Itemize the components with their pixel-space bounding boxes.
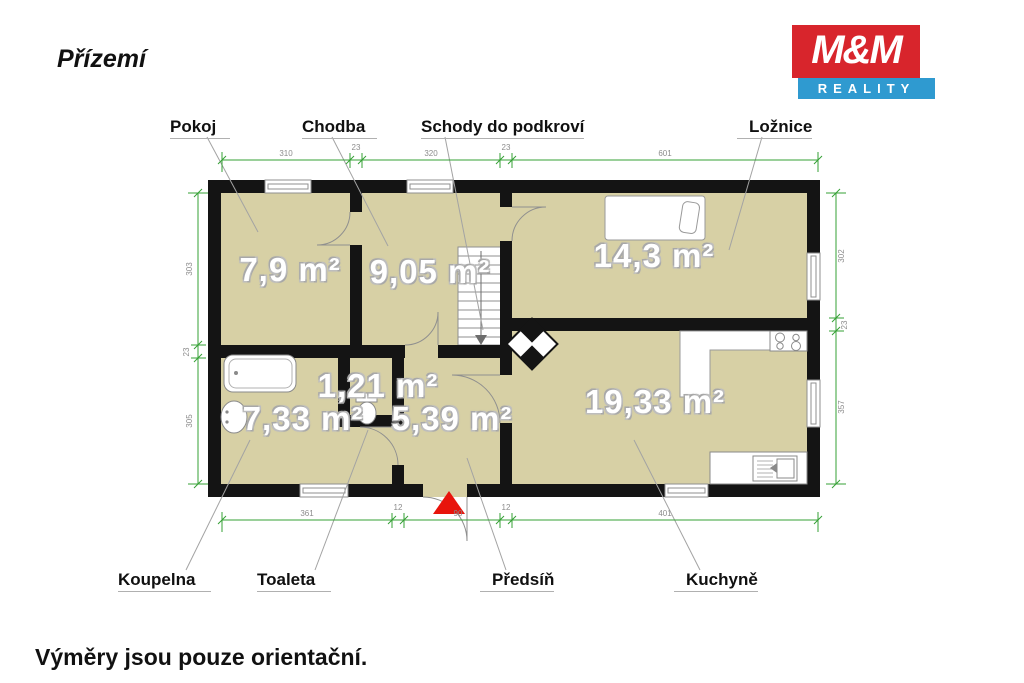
kitchen-sink-icon bbox=[710, 452, 807, 484]
window-kuchyne-bottom bbox=[665, 484, 708, 497]
bed-icon bbox=[605, 196, 705, 240]
logo-reality-text: REALITY bbox=[798, 78, 935, 99]
room-label-kuchyne: Kuchyně bbox=[674, 570, 758, 592]
window-koupelna bbox=[300, 484, 348, 497]
room-label-schody: Schody do podkroví bbox=[421, 117, 584, 139]
dim-ticks-top bbox=[218, 152, 822, 172]
area-koupelna: 7,33 m² bbox=[243, 400, 364, 438]
dim-right-2: 23 bbox=[840, 320, 849, 329]
area-chodba: 9,05 m² bbox=[370, 253, 491, 291]
dim-top-3: 320 bbox=[424, 149, 438, 158]
dim-left-2: 23 bbox=[182, 347, 191, 356]
dim-right-3: 357 bbox=[837, 400, 846, 414]
dim-top-2: 23 bbox=[352, 143, 361, 152]
room-label-chodba: Chodba bbox=[302, 117, 377, 139]
logo-mm-text: M&M bbox=[792, 25, 920, 78]
dim-bottom-1: 361 bbox=[300, 509, 314, 518]
bathtub-icon bbox=[224, 355, 296, 392]
dim-right-1: 302 bbox=[837, 249, 846, 263]
area-kuchyne: 19,33 m² bbox=[585, 383, 725, 421]
dim-bottom-4: 12 bbox=[502, 503, 511, 512]
dim-left-3: 305 bbox=[185, 414, 194, 428]
dim-left-1: 303 bbox=[185, 262, 194, 276]
room-label-loznice: Ložnice bbox=[737, 117, 812, 139]
area-loznice: 14,3 m² bbox=[594, 237, 715, 275]
wall-chodba-loznice-lower bbox=[500, 241, 512, 355]
area-pokoj: 7,9 m² bbox=[239, 251, 340, 289]
wall-mid-right bbox=[438, 345, 512, 358]
room-label-toaleta: Toaleta bbox=[257, 570, 331, 592]
window-loznice bbox=[807, 253, 820, 300]
dim-bottom-3: 90 bbox=[454, 509, 463, 518]
wall-koupelna-predsin-stub bbox=[392, 465, 404, 484]
area-predsin: 5,39 m² bbox=[392, 400, 513, 438]
wall-loznice-kuchyne bbox=[512, 318, 807, 331]
stove-icon bbox=[770, 331, 807, 351]
wall-pokoj-chodba-upper bbox=[350, 193, 362, 212]
window-kuchyne-right bbox=[807, 380, 820, 427]
entrance-opening bbox=[423, 484, 467, 497]
dim-bottom-2: 12 bbox=[394, 503, 403, 512]
dim-top-1: 310 bbox=[279, 149, 293, 158]
dim-bottom-5: 401 bbox=[658, 509, 672, 518]
window-pokoj bbox=[265, 180, 311, 193]
room-label-koupelna: Koupelna bbox=[118, 570, 211, 592]
room-label-predsin: Předsíň bbox=[480, 570, 554, 592]
wall-pokoj-chodba-lower bbox=[350, 245, 362, 345]
room-label-pokoj: Pokoj bbox=[170, 117, 230, 139]
page-title: Přízemí bbox=[57, 45, 146, 74]
window-chodba bbox=[407, 180, 453, 193]
dim-top-5: 601 bbox=[658, 149, 672, 158]
wall-predsin-kuchyne-upper bbox=[500, 358, 512, 375]
dim-top-4: 23 bbox=[502, 143, 511, 152]
footer-disclaimer: Výměry jsou pouze orientační. bbox=[35, 644, 367, 671]
wall-chodba-loznice-upper bbox=[500, 193, 512, 207]
